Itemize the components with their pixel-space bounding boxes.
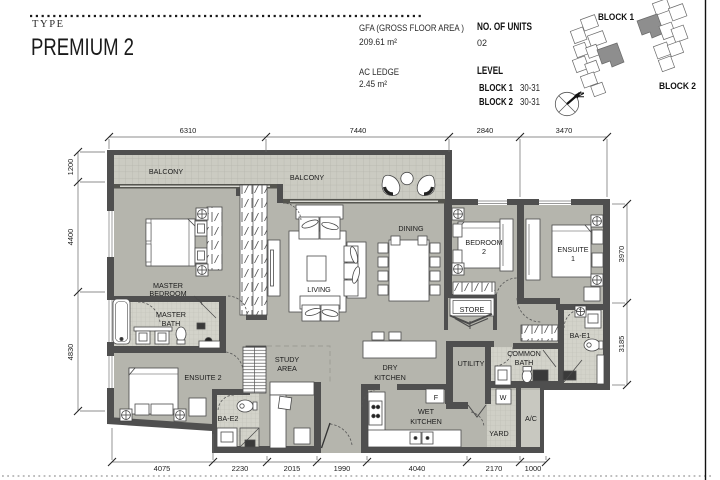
svg-text:4830: 4830: [66, 344, 75, 361]
svg-text:BLOCK 1: BLOCK 1: [479, 83, 513, 94]
svg-text:UTILITY: UTILITY: [458, 359, 485, 368]
svg-text:LIVING: LIVING: [307, 285, 331, 294]
svg-text:BALCONY: BALCONY: [149, 167, 184, 176]
svg-text:BEDROOM: BEDROOM: [149, 289, 186, 298]
svg-text:BATH: BATH: [162, 319, 181, 328]
svg-text:3970: 3970: [617, 246, 626, 263]
svg-text:6310: 6310: [180, 126, 197, 135]
svg-text:1990: 1990: [334, 464, 351, 473]
svg-text:1000: 1000: [525, 464, 542, 473]
svg-text:STUDY: STUDY: [275, 355, 300, 364]
svg-text:2170: 2170: [486, 464, 503, 473]
svg-text:4040: 4040: [409, 464, 426, 473]
svg-text:PREMIUM 2: PREMIUM 2: [31, 34, 134, 61]
svg-text:2230: 2230: [232, 464, 249, 473]
svg-text:N: N: [576, 92, 585, 98]
svg-text:W: W: [500, 393, 507, 402]
svg-text:ENSUITE: ENSUITE: [557, 245, 588, 254]
svg-text:TYPE: TYPE: [32, 19, 65, 30]
svg-text:A/C: A/C: [525, 414, 537, 423]
svg-text:STORE: STORE: [460, 305, 485, 314]
svg-text:4075: 4075: [154, 464, 171, 473]
svg-text:COMMON: COMMON: [507, 349, 541, 358]
svg-text:02: 02: [477, 38, 487, 49]
svg-text:2015: 2015: [284, 464, 301, 473]
svg-text:BA-E1: BA-E1: [570, 331, 591, 340]
svg-text:KITCHEN: KITCHEN: [410, 417, 442, 426]
svg-text:GFA (GROSS FLOOR AREA ): GFA (GROSS FLOOR AREA ): [359, 23, 464, 33]
svg-text:LEVEL: LEVEL: [477, 65, 503, 77]
svg-text:BLOCK 1: BLOCK 1: [598, 12, 635, 23]
svg-text:BEDROOM: BEDROOM: [465, 238, 502, 247]
svg-text:2: 2: [482, 247, 486, 256]
svg-text:3470: 3470: [556, 126, 573, 135]
svg-text:BA-E2: BA-E2: [218, 414, 239, 423]
svg-text:209.61 m²: 209.61 m²: [359, 37, 397, 47]
svg-text:KITCHEN: KITCHEN: [374, 373, 406, 382]
svg-text:7440: 7440: [350, 126, 367, 135]
svg-text:4400: 4400: [66, 229, 75, 246]
svg-text:30-31: 30-31: [520, 83, 540, 94]
svg-text:AREA: AREA: [277, 364, 297, 373]
svg-text:DINING: DINING: [398, 224, 424, 233]
svg-text:2840: 2840: [477, 126, 494, 135]
svg-text:DRY: DRY: [382, 363, 397, 372]
svg-text:2.45 m²: 2.45 m²: [359, 79, 387, 89]
svg-text:BLOCK 2: BLOCK 2: [479, 97, 513, 108]
svg-text:AC LEDGE: AC LEDGE: [359, 67, 399, 77]
svg-text:30-31: 30-31: [520, 97, 540, 108]
svg-text:1200: 1200: [66, 159, 75, 176]
svg-text:BALCONY: BALCONY: [290, 173, 325, 182]
svg-text:3185: 3185: [617, 336, 626, 353]
svg-text:BATH: BATH: [515, 358, 534, 367]
svg-text:1: 1: [571, 254, 575, 263]
svg-text:YARD: YARD: [489, 429, 508, 438]
svg-text:WET: WET: [418, 407, 435, 416]
svg-text:ENSUITE 2: ENSUITE 2: [184, 373, 221, 382]
svg-text:MASTER: MASTER: [156, 310, 186, 319]
svg-text:NO. OF UNITS: NO. OF UNITS: [477, 21, 532, 33]
svg-text:F: F: [434, 393, 439, 402]
svg-text:BLOCK 2: BLOCK 2: [659, 81, 696, 92]
